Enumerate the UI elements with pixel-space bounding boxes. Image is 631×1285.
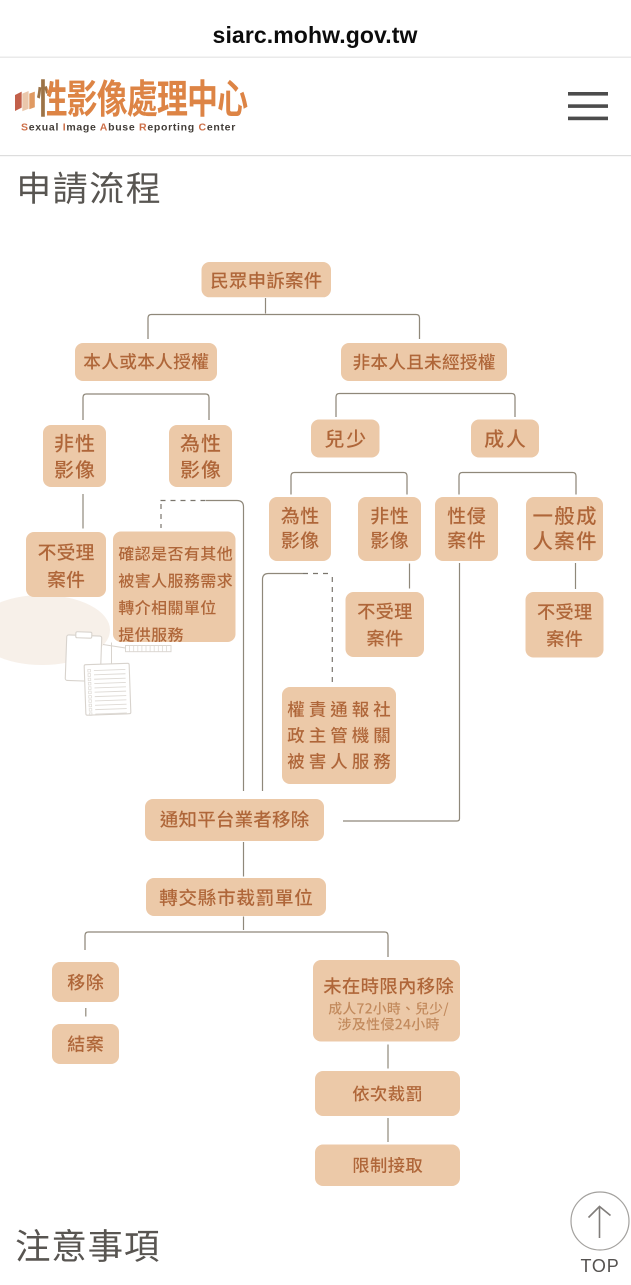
svg-text:TOP: TOP [580,1256,619,1276]
svg-text:siarc.mohw.gov.tw: siarc.mohw.gov.tw [213,22,418,48]
svg-text:Sexual Image Abuse Reporting C: Sexual Image Abuse Reporting Center [21,121,236,133]
